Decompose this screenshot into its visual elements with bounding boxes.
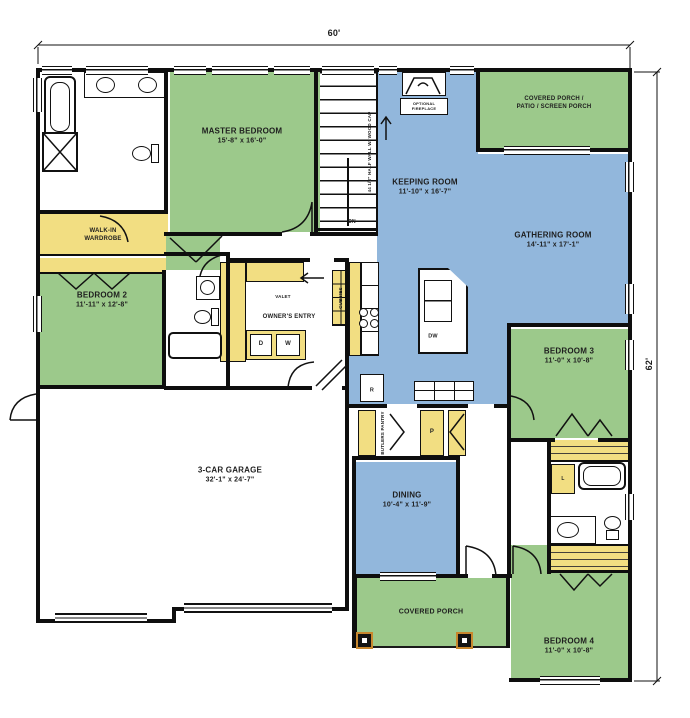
room-name: COVERED PORCH / xyxy=(517,96,592,104)
dishwasher-label: DW xyxy=(428,333,438,340)
room-label-owners-entry: OWNER'S ENTRY xyxy=(263,314,316,322)
room-label-porch-patio: COVERED PORCH / PATIO / SCREEN PORCH xyxy=(517,96,592,112)
wall-segment xyxy=(456,456,460,576)
wall-segment xyxy=(162,270,166,388)
wall-segment xyxy=(551,460,628,462)
room-label-wardrobe: WALK-IN WARDROBE xyxy=(84,228,121,244)
master-sink-2 xyxy=(138,77,157,93)
wall-segment xyxy=(507,323,511,578)
window xyxy=(42,66,72,75)
room-label-dining: DINING 10'-4" x 11'-9" xyxy=(383,490,431,509)
bedroom4-closet-area xyxy=(551,546,628,572)
garage-door-2 xyxy=(184,603,332,613)
pantry-label: P xyxy=(430,429,434,437)
window xyxy=(625,494,634,520)
dimension-line-top xyxy=(34,41,634,68)
bath34-toilet-bowl xyxy=(604,516,621,530)
window xyxy=(274,66,310,75)
washer-label: W xyxy=(285,341,291,349)
wall-segment xyxy=(40,272,164,274)
window xyxy=(33,296,42,332)
window xyxy=(625,284,634,314)
bath2-tub xyxy=(168,332,222,359)
room-name: BEDROOM 4 xyxy=(544,636,594,646)
window xyxy=(86,66,148,75)
wall-segment xyxy=(506,578,510,648)
dining-area xyxy=(356,462,456,574)
cooktop-burner-4 xyxy=(370,319,379,328)
banquette-bench xyxy=(414,381,474,401)
front-door xyxy=(466,546,496,576)
master-bedroom-area xyxy=(170,72,320,232)
window xyxy=(174,66,206,75)
room-name: DINING xyxy=(383,490,431,500)
room-name: WARDROBE xyxy=(84,236,121,244)
room-name: WALK-IN xyxy=(84,228,121,236)
room-name: BEDROOM 3 xyxy=(544,346,594,356)
left-arrow-icon xyxy=(301,273,324,283)
wall-segment xyxy=(164,68,168,214)
dim-height-label: 62' xyxy=(644,358,656,371)
room-label-covered-porch: COVERED PORCH xyxy=(399,607,463,616)
wall-segment xyxy=(345,258,349,388)
window xyxy=(322,66,374,75)
owners-entry-counter-left xyxy=(220,262,246,362)
room-name: MASTER BEDROOM xyxy=(202,126,283,136)
wall-segment xyxy=(551,544,628,546)
cubbies-label: CUBBIES xyxy=(338,287,344,309)
fireplace-label-line: FIREPLACE xyxy=(412,106,436,111)
pantry-closet-2 xyxy=(448,410,466,456)
window xyxy=(379,66,397,75)
bath2-sink xyxy=(200,280,215,295)
master-toilet-bowl xyxy=(132,146,151,161)
porch-column-2 xyxy=(456,632,473,649)
window xyxy=(504,146,590,155)
room-dims: 32'-1" x 24'-7" xyxy=(198,476,262,485)
cooktop-burner-3 xyxy=(359,319,368,328)
butlers-pantry-cabinet xyxy=(358,410,376,456)
bedroom3-closet-area xyxy=(551,440,628,462)
dim-width-label: 60' xyxy=(328,28,341,40)
wall-segment xyxy=(476,68,480,152)
room-dims: 15'-8" x 16'-0" xyxy=(202,137,283,146)
room-dims: 11'-10" x 16'-7" xyxy=(392,188,458,197)
wall-segment xyxy=(598,438,632,442)
master-sink-1 xyxy=(96,77,115,93)
window xyxy=(625,340,634,370)
garage-side-door xyxy=(10,394,36,420)
room-label-bedroom3: BEDROOM 3 11'-0" x 10'-8" xyxy=(544,346,594,365)
wall-segment xyxy=(551,570,628,573)
dryer-label: D xyxy=(259,341,264,349)
owners-entry-counter-top xyxy=(246,262,304,282)
room-label-gathering: GATHERING ROOM 14'-11" x 17'-1" xyxy=(514,230,591,249)
room-name: 3-CAR GARAGE xyxy=(198,465,262,475)
wall-segment xyxy=(628,68,632,682)
room-name: PATIO / SCREEN PORCH xyxy=(517,104,592,112)
room-dims: 11'-0" x 10'-8" xyxy=(544,647,594,656)
keeping-kitchen-area xyxy=(377,72,478,404)
cooktop-burner-2 xyxy=(370,308,379,317)
wall-segment xyxy=(310,232,378,236)
window xyxy=(540,676,600,685)
stair-rail xyxy=(347,158,349,226)
window xyxy=(212,66,268,75)
valet-label: VALET xyxy=(275,294,290,300)
wall-segment xyxy=(40,254,166,256)
wall-segment xyxy=(314,228,378,231)
room-dims: 11'-0" x 10'-8" xyxy=(544,357,594,366)
wall-segment xyxy=(314,68,318,232)
wall-segment xyxy=(164,232,282,236)
wall-segment xyxy=(417,404,468,408)
island-sink xyxy=(424,280,452,322)
room-label-master-bedroom: MASTER BEDROOM 15'-8" x 16'-0" xyxy=(202,126,283,145)
wall-segment xyxy=(36,210,168,214)
wall-segment xyxy=(507,323,630,327)
wall-segment xyxy=(345,404,387,408)
master-shower xyxy=(42,132,78,172)
half-wall-note: 44 1/2" HALF WALL W/ WOOD CAP xyxy=(367,112,373,193)
porch-column-1 xyxy=(356,632,373,649)
cooktop-burner-1 xyxy=(359,308,368,317)
room-label-bedroom4: BEDROOM 4 11'-0" x 10'-8" xyxy=(544,636,594,655)
window xyxy=(33,78,42,112)
room-dims: 14'-11" x 17'-1" xyxy=(514,241,591,250)
wall-segment xyxy=(352,456,356,576)
wall-segment xyxy=(36,68,40,623)
garage-door-1 xyxy=(55,613,147,623)
wall-segment xyxy=(226,258,310,262)
fireplace-box xyxy=(402,72,446,96)
bath34-toilet-base xyxy=(606,530,619,540)
fireplace-label: OPTIONAL FIREPLACE xyxy=(412,101,436,111)
floor-plan: 60' 62' MASTER BEDROOM 15'-8" x 16'-0" W… xyxy=(0,0,690,718)
room-label-keeping: KEEPING ROOM 11'-10" x 16'-7" xyxy=(392,177,458,196)
half-wall xyxy=(376,72,378,232)
wall-segment xyxy=(36,385,166,389)
wall-segment xyxy=(494,404,510,408)
master-toilet-tank xyxy=(151,144,159,163)
linen-label: L xyxy=(561,476,564,483)
dimension-line-right xyxy=(634,68,661,685)
wall-segment xyxy=(164,386,312,390)
butlers-pantry-label: BUTLERS PANTRY xyxy=(380,411,386,454)
wall-segment xyxy=(352,456,458,460)
room-label-bedroom2: BEDROOM 2 11'-11" x 12'-8" xyxy=(76,290,128,309)
room-name: KEEPING ROOM xyxy=(392,177,458,187)
window xyxy=(625,162,634,192)
window xyxy=(450,66,474,75)
wall-segment xyxy=(345,386,349,611)
room-dims: 10'-4" x 11'-9" xyxy=(383,501,431,510)
bath2-toilet-tank xyxy=(211,308,219,326)
wall-segment xyxy=(547,438,551,574)
bath34-tub-basin xyxy=(583,466,621,486)
bath34-sink xyxy=(557,522,579,538)
master-tub-basin xyxy=(50,82,70,132)
wall-segment xyxy=(164,252,228,256)
room-label-garage: 3-CAR GARAGE 32'-1" x 24'-7" xyxy=(198,465,262,484)
bedroom-hall-area xyxy=(478,325,507,404)
room-dims: 11'-11" x 12'-8" xyxy=(76,301,128,310)
wall-segment xyxy=(226,252,230,390)
window xyxy=(380,572,436,581)
stairs-dn-label: DN xyxy=(348,219,356,226)
room-name: GATHERING ROOM xyxy=(514,230,591,240)
refrigerator-label: R xyxy=(370,387,374,394)
bath2-toilet-bowl xyxy=(194,310,211,324)
room-name: BEDROOM 2 xyxy=(76,290,128,300)
